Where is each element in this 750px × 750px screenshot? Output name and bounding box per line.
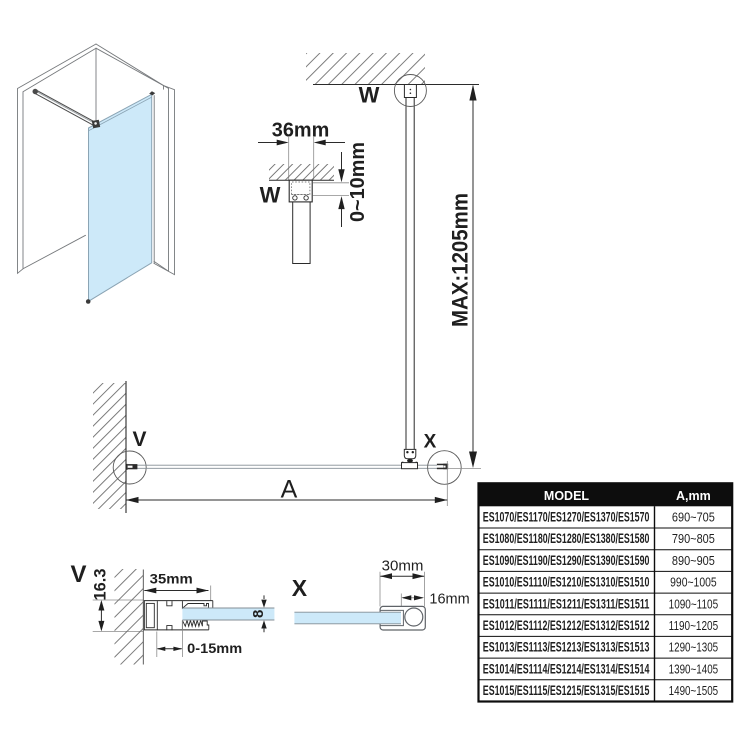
svg-text:ES1015/ES1115/ES1215/ES1315/ES: ES1015/ES1115/ES1215/ES1315/ES1515	[483, 683, 650, 698]
svg-text:0~10mm: 0~10mm	[347, 142, 369, 222]
svg-text:ES1080/ES1180/ES1280/ES1380/ES: ES1080/ES1180/ES1280/ES1380/ES1580	[483, 531, 650, 546]
svg-text:A: A	[281, 476, 298, 504]
svg-text:ES1013/ES1113/ES1213/ES1313/ES: ES1013/ES1113/ES1213/ES1313/ES1513	[483, 640, 650, 655]
svg-text:W: W	[359, 83, 380, 108]
svg-text:ES1011/ES1111/ES1211/ES1311/ES: ES1011/ES1111/ES1211/ES1311/ES1511	[483, 596, 650, 611]
svg-text:MODEL: MODEL	[544, 489, 590, 503]
svg-text:ES1070/ES1170/ES1270/ES1370/ES: ES1070/ES1170/ES1270/ES1370/ES1570	[483, 510, 650, 525]
svg-text:990~1005: 990~1005	[670, 575, 717, 590]
svg-text:8: 8	[250, 610, 267, 618]
svg-text:16.3: 16.3	[91, 569, 110, 601]
svg-text:1290~1305: 1290~1305	[669, 640, 719, 655]
svg-text:0-15mm: 0-15mm	[187, 641, 242, 656]
svg-text:690~705: 690~705	[672, 510, 715, 525]
svg-text:V: V	[70, 561, 86, 588]
svg-text:1190~1205: 1190~1205	[669, 618, 719, 633]
svg-text:ES1014/ES1114/ES1214/ES1314/ES: ES1014/ES1114/ES1214/ES1314/ES1514	[483, 661, 650, 676]
svg-text:X: X	[292, 575, 308, 601]
svg-text:790~805: 790~805	[672, 531, 715, 546]
svg-text:35mm: 35mm	[150, 572, 193, 587]
svg-text:X: X	[424, 432, 437, 453]
svg-text:W: W	[260, 183, 281, 208]
svg-text:1490~1505: 1490~1505	[669, 683, 719, 698]
svg-text:1090~1105: 1090~1105	[669, 596, 719, 611]
svg-text:1390~1405: 1390~1405	[669, 661, 719, 676]
svg-text:ES1010/ES1110/ES1210/ES1310/ES: ES1010/ES1110/ES1210/ES1310/ES1510	[483, 575, 650, 590]
svg-text:ES1012/ES1112/ES1212/ES1312/ES: ES1012/ES1112/ES1212/ES1312/ES1512	[483, 618, 650, 633]
svg-text:30mm: 30mm	[382, 559, 424, 575]
svg-text:16mm: 16mm	[429, 592, 469, 608]
svg-text:A,mm: A,mm	[676, 489, 711, 503]
svg-text:890~905: 890~905	[672, 553, 715, 568]
svg-text:V: V	[132, 428, 146, 451]
svg-text:MAX:1205mm: MAX:1205mm	[448, 193, 473, 327]
svg-text:36mm: 36mm	[272, 120, 330, 142]
svg-text:ES1090/ES1190/ES1290/ES1390/ES: ES1090/ES1190/ES1290/ES1390/ES1590	[483, 553, 650, 568]
